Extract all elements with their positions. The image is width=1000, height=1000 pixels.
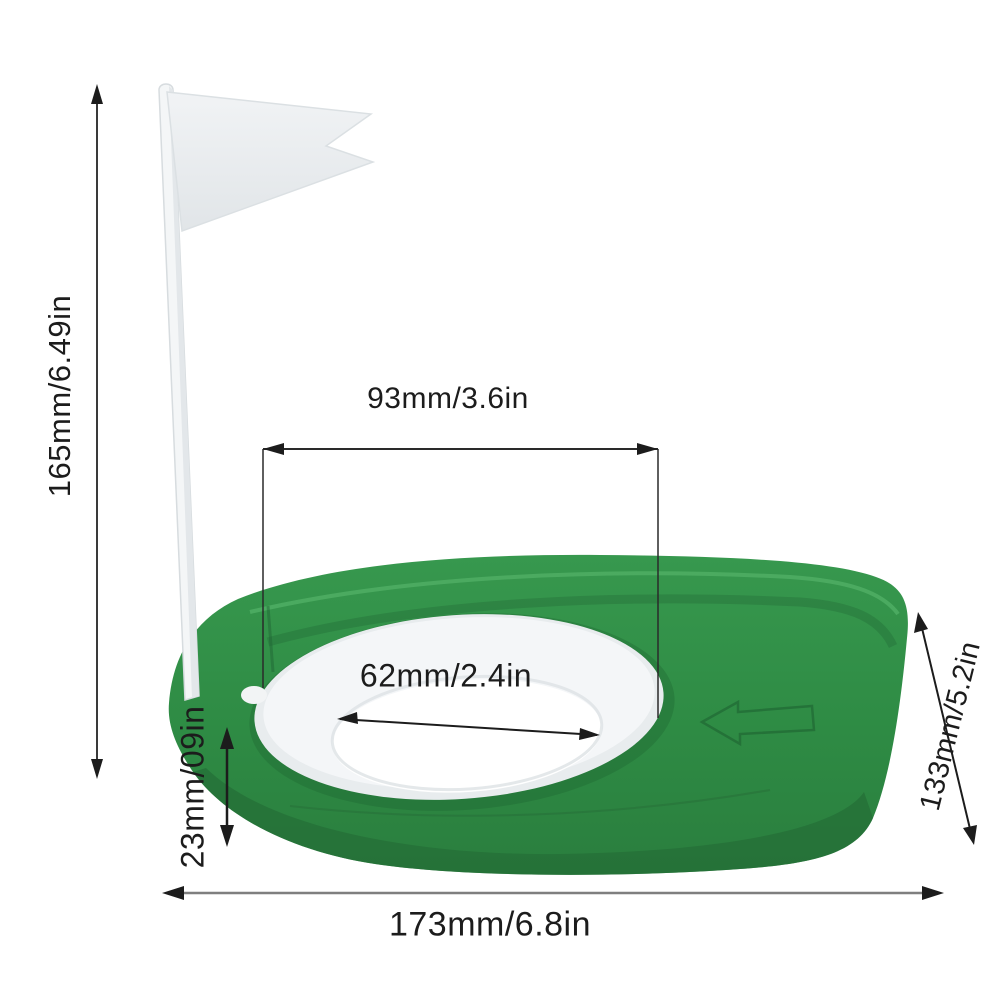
scene-graphic: [0, 0, 1000, 1000]
edge-height-dimension-label: 23mm/09in: [175, 706, 212, 869]
height-dimension-label: 165mm/6.49in: [42, 295, 78, 497]
putting-base: [169, 555, 908, 875]
hole-diameter-dimension-label: 62mm/2.4in: [360, 658, 532, 695]
ring-clip-tab: [241, 686, 267, 704]
width-dimension-arrow: [162, 886, 944, 900]
flag: [167, 92, 373, 231]
hole-spacing-dimension-label: 93mm/3.6in: [367, 382, 529, 416]
product-dimension-diagram: 165mm/6.49in 93mm/3.6in 62mm/2.4in 23mm/…: [0, 0, 1000, 1000]
height-dimension-arrow: [91, 84, 103, 779]
width-dimension-label: 173mm/6.8in: [389, 906, 591, 945]
